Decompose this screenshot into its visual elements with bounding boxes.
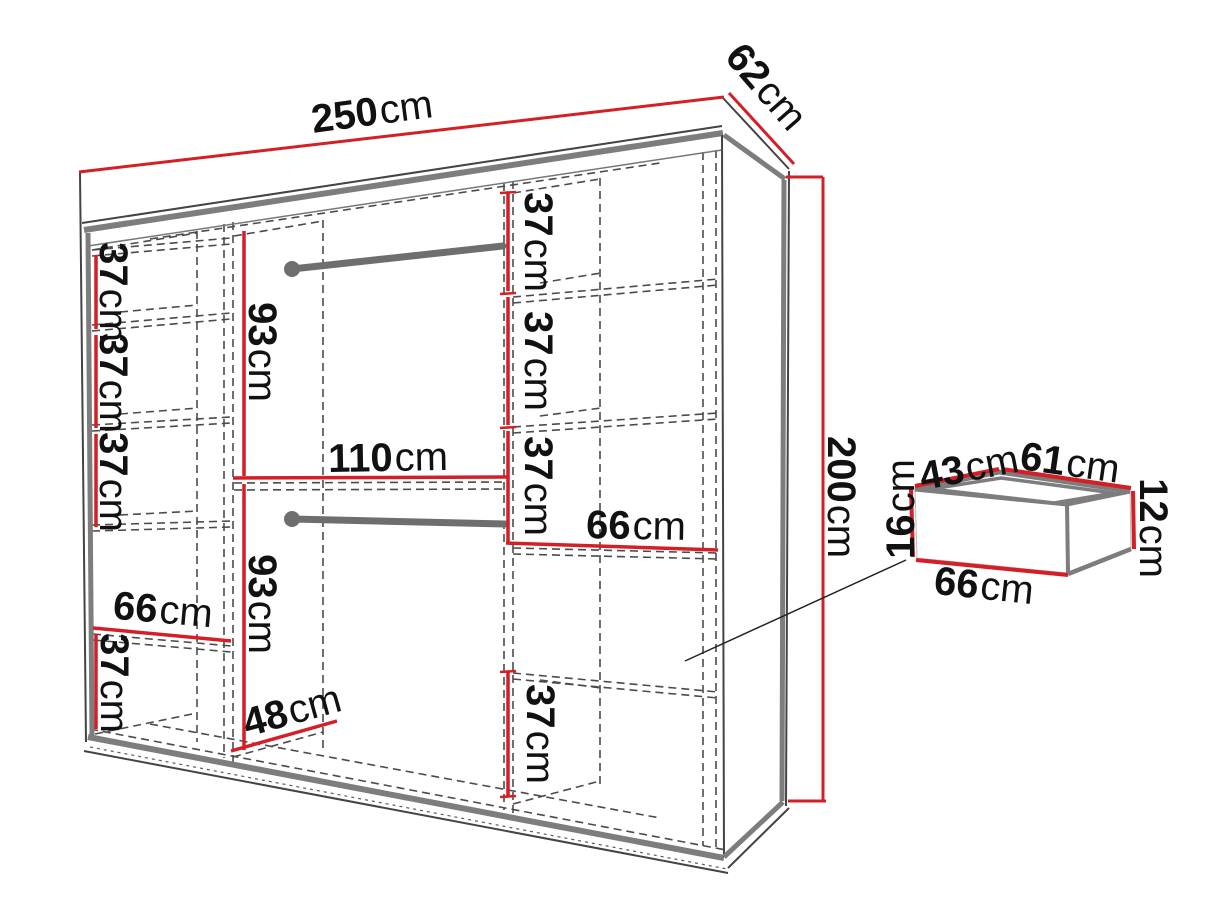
dim-label-left-gap-2: 37cm (91, 333, 135, 433)
dim-label-left-gap-1: 37cm (91, 242, 135, 342)
diagram-svg: 250cm 62cm 200cm 37cm 37cm 37cm 66cm 37c… (0, 0, 1223, 918)
dim-label-mid-hang-lower: 93cm (240, 554, 284, 654)
dim-label-drawer-back-height: 12cm (1131, 478, 1175, 578)
hanging-rod-top-cap (284, 261, 300, 277)
dim-label-left-shelf-width: 66cm (111, 584, 214, 637)
dim-label-left-gap-3: 37cm (91, 432, 135, 532)
dim-label-right-gap-4: 37cm (518, 684, 562, 784)
dim-label-mid-hang-upper: 93cm (240, 302, 284, 402)
drawer-leader-line (685, 560, 906, 661)
dim-label-right-gap-2: 37cm (516, 311, 560, 411)
wardrobe-dimension-diagram: 250cm 62cm 200cm 37cm 37cm 37cm 66cm 37c… (0, 0, 1223, 918)
dim-label-overall-height: 200cm (819, 436, 863, 558)
dim-label-right-gap-3: 37cm (516, 436, 560, 536)
dim-label-mid-width: 110cm (328, 435, 449, 481)
dim-label-right-shelf-width: 66cm (586, 503, 687, 549)
dim-label-left-gap-4: 37cm (92, 633, 136, 733)
wardrobe-body (80, 98, 789, 873)
hanging-rods (284, 246, 505, 527)
hanging-rod-bottom-cap (284, 511, 300, 527)
dim-label-drawer-front-width: 66cm (932, 559, 1036, 613)
dimension-lines (79, 93, 826, 801)
hanging-rod-bottom (292, 519, 505, 524)
dim-label-overall-depth: 62cm (717, 35, 816, 139)
dim-label-right-gap-1: 37cm (516, 192, 560, 292)
dim-label-drawer-front-height: 16cm (879, 459, 923, 559)
